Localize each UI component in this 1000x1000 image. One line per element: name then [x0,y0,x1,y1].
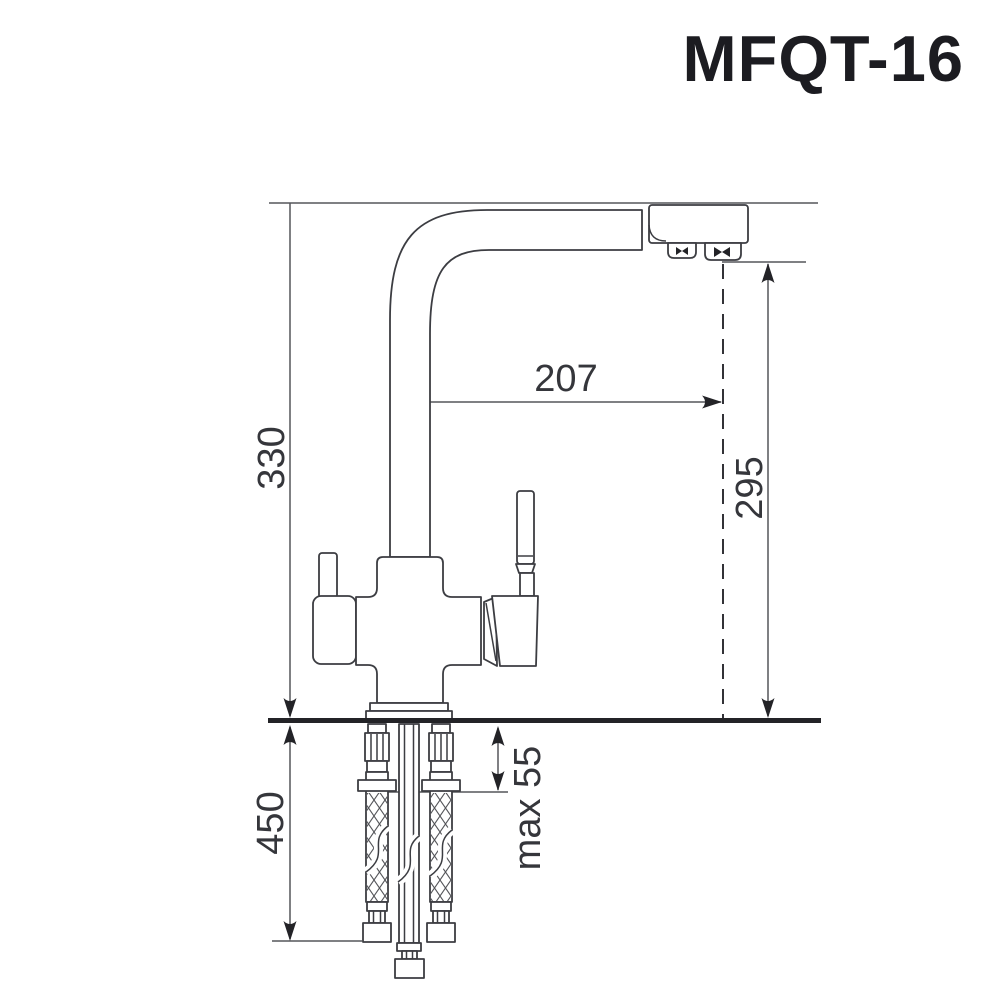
spout-tube [390,210,642,557]
hose-bolt [369,911,385,923]
dim-label-max55: max 55 [507,746,549,871]
hose-stub [368,724,386,733]
stud-flange [397,943,421,951]
arrow-207-right-icon [702,396,722,409]
base-plate-top [370,703,448,711]
hose-collar [431,761,451,772]
dim-label-207: 207 [534,358,597,400]
arrow-295-up-icon [762,263,775,283]
dim-label-450: 450 [250,791,292,854]
arrow-450-down-icon [284,921,297,941]
right-handle-lever [517,491,534,564]
hose-bottom-collar [431,902,451,911]
hose-nut [363,923,391,942]
hose-stub [432,724,450,733]
stud-stub [402,951,417,959]
arrow-max55-down-icon [492,771,505,791]
right-handle-base [492,596,538,666]
supply-hose-left [358,724,396,942]
arrow-330-down-icon [284,698,297,718]
stud-nut [395,959,424,978]
left-handle-body [313,596,356,664]
hose-nut [427,923,455,942]
aerator-left [668,243,696,258]
arrow-max55-up-icon [492,726,505,746]
hose-washer [422,780,460,791]
hose-bolt [433,911,449,923]
arrow-295-down-icon [762,698,775,718]
dim-label-330: 330 [251,426,293,489]
left-handle-lever [319,553,337,598]
right-handle-taper [516,564,535,573]
hose-bottom-collar [367,902,387,911]
dim-label-295: 295 [729,456,771,519]
hose-collar [367,761,387,772]
right-handle-neck [520,573,534,596]
faucet-body [313,205,748,720]
spout-head [649,205,748,243]
arrow-450-up-icon [284,725,297,745]
supply-hose-right [422,724,460,942]
faucet-dimension-diagram: 207 330 295 450 max 55 [0,0,1000,1000]
mounting-stud [395,724,424,978]
cross-body [356,557,481,703]
hose-washer [358,780,396,791]
drawing-page: MFQT-16 [0,0,1000,1000]
